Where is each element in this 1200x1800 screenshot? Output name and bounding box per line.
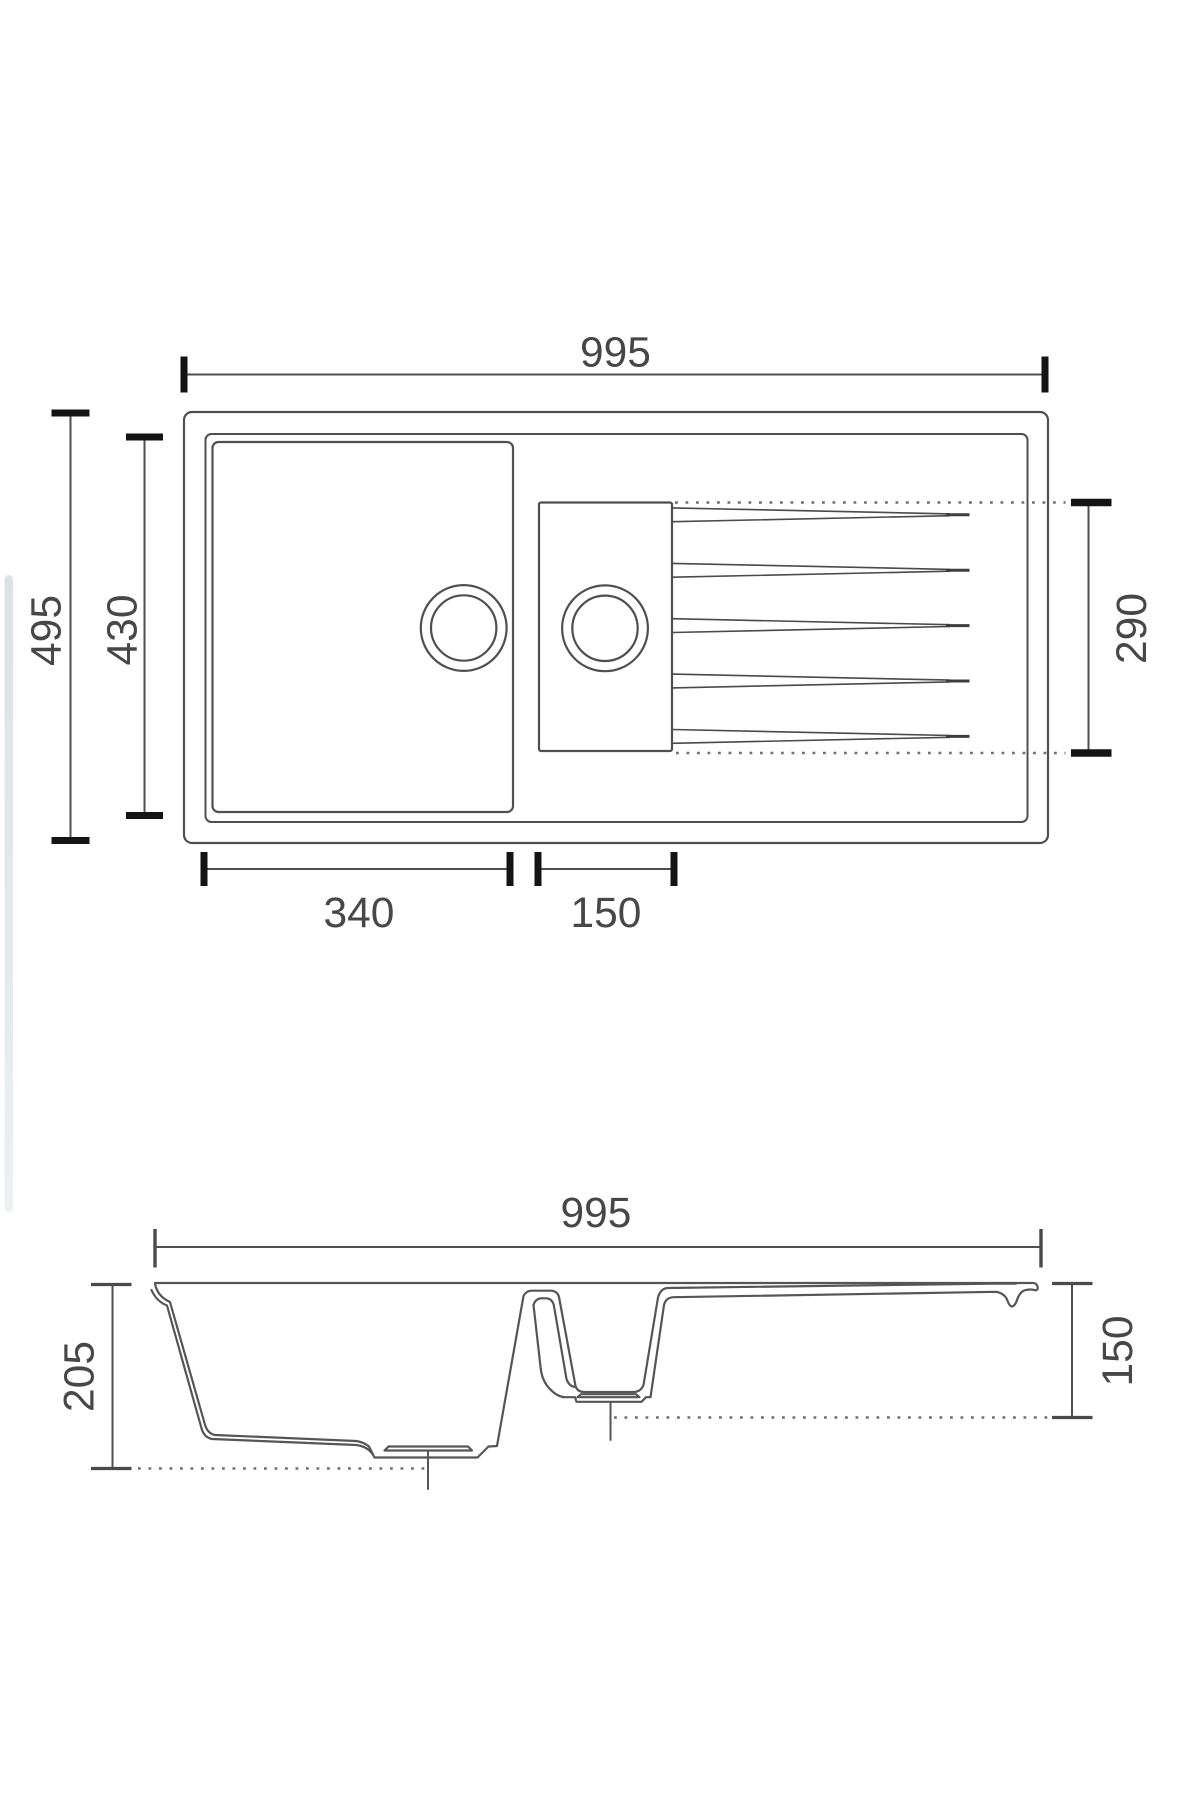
svg-text:995: 995 [561,1190,632,1237]
svg-text:995: 995 [580,330,651,377]
svg-text:290: 290 [1109,593,1156,664]
svg-text:430: 430 [100,595,147,666]
svg-text:340: 340 [324,890,395,937]
svg-text:150: 150 [571,890,642,937]
svg-text:205: 205 [57,1341,104,1412]
svg-text:150: 150 [1095,1316,1142,1387]
svg-text:495: 495 [24,595,71,666]
